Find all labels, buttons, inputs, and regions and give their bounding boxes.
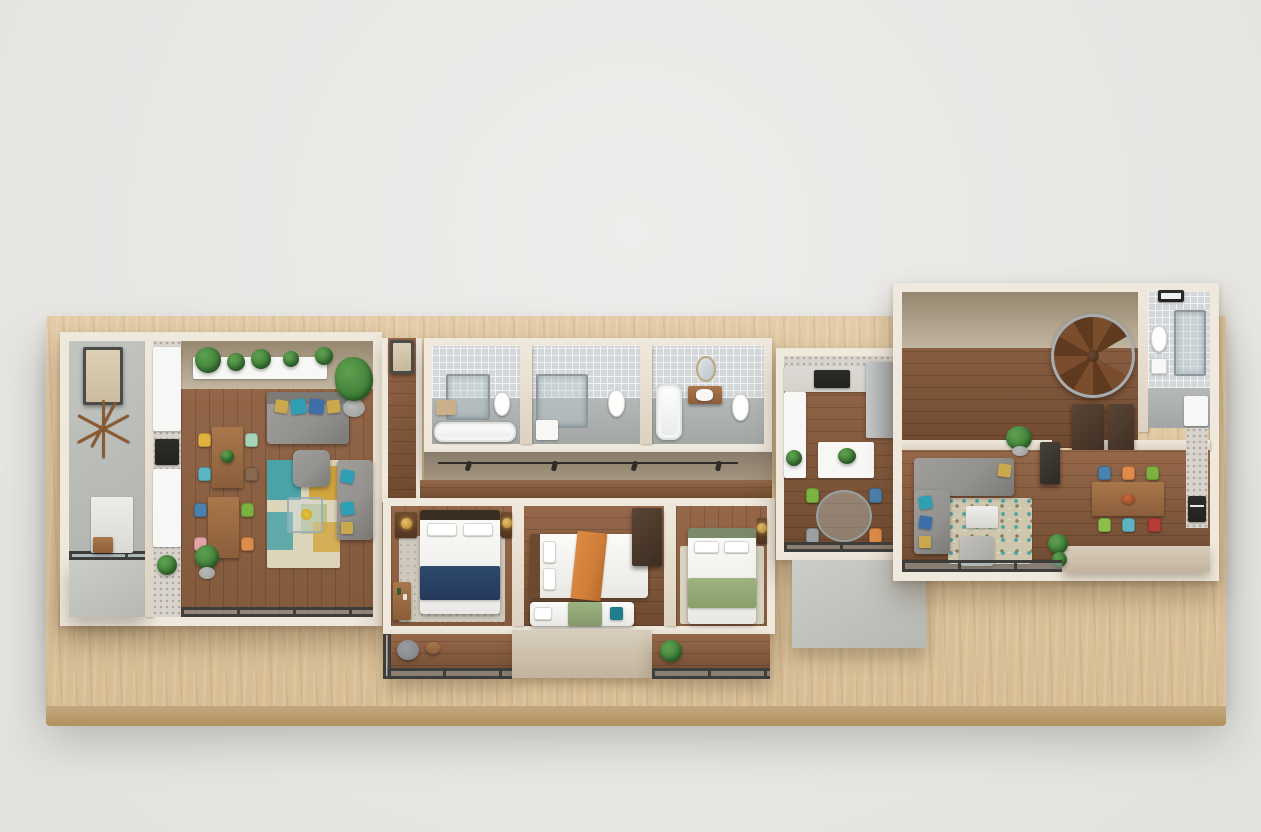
dining-chair-blue [869, 488, 882, 503]
terrace-blank-wall [512, 630, 652, 678]
kitchen-counter-upper [153, 347, 181, 431]
balcony-plant [660, 640, 682, 662]
orange-throw [571, 531, 608, 602]
dining-chair-orange [869, 528, 882, 543]
pillow-gold [919, 536, 931, 548]
pillow [463, 523, 493, 536]
pillow-blue [308, 398, 324, 414]
pillow [694, 541, 719, 553]
sofa [267, 392, 349, 444]
oven-handle [1190, 505, 1204, 507]
bedroom-wing [383, 498, 775, 634]
balcony-side-table [426, 642, 440, 654]
teal-cushion [610, 607, 623, 620]
refrigerator [866, 362, 896, 438]
pillow [543, 568, 556, 590]
armchair [293, 450, 330, 487]
corridor [382, 338, 422, 502]
dining-chair-green [1146, 466, 1159, 480]
staircase-pole [1087, 350, 1099, 362]
dining-front-wall [1062, 546, 1210, 572]
yellow-flowers [301, 509, 312, 520]
headboard [530, 534, 540, 598]
shower-tray [536, 420, 558, 440]
dining-chair-orange [241, 537, 254, 551]
navy-throw [420, 566, 500, 600]
pillow-teal [340, 501, 355, 516]
shelf-plant [227, 353, 245, 371]
bathtub [656, 384, 682, 440]
pillow [427, 523, 457, 536]
dining-chair-green [241, 503, 254, 517]
front-door-panel [86, 350, 120, 402]
dining-chair-gray [806, 528, 819, 543]
right-wing [893, 283, 1219, 581]
wardrobe [632, 508, 662, 566]
fiddle-leaf-plant [335, 357, 373, 401]
living-glass-wall [181, 607, 373, 617]
hallway-floor [420, 480, 772, 500]
table-plant [221, 450, 234, 463]
brass-lamp [502, 518, 512, 528]
pillow [534, 607, 552, 620]
shelf-plant [315, 347, 333, 365]
bed-single-sage [530, 602, 634, 626]
washbasin [1151, 358, 1167, 374]
dining-chair-blue [194, 503, 207, 517]
dining-chair-teal [198, 467, 211, 481]
pillow [543, 541, 556, 563]
dining-chair-walnut [245, 467, 258, 481]
oven [1188, 496, 1206, 522]
sage-throw [688, 578, 756, 608]
left-wing [60, 332, 382, 626]
headboard [688, 528, 756, 538]
kitchenette-tall-cabinet [1184, 396, 1208, 426]
fiddle-plant-pot [343, 399, 365, 417]
writing-desk [393, 582, 411, 620]
pillow [724, 541, 749, 553]
glass-railing [387, 668, 512, 679]
wood-base-front-edge [46, 706, 1226, 726]
shelf-plant [283, 351, 299, 367]
washbasin [696, 389, 713, 401]
pillow-gold [274, 399, 289, 414]
pillow-gold [997, 463, 1012, 478]
dining-chair-lime [1098, 518, 1111, 532]
dining-chair-mint [245, 433, 258, 447]
round-glass-table [816, 490, 872, 542]
brass-lamp [401, 518, 412, 529]
coat-hook [715, 461, 722, 472]
cooktop [155, 439, 179, 465]
vanity [688, 386, 722, 404]
dining-chair-yellow [198, 433, 211, 447]
bathroom-divider-wall [520, 346, 532, 444]
dining-chair-blue [1098, 466, 1111, 480]
coat-rack [75, 397, 133, 461]
toilet [1151, 326, 1167, 352]
pillow-teal [290, 398, 307, 415]
left-balcony-floor [69, 560, 145, 617]
shelf-plant [251, 349, 271, 369]
shower [1174, 310, 1206, 376]
toilet [732, 394, 749, 421]
bed-navy [420, 510, 500, 614]
media-cabinet [1040, 442, 1060, 484]
balcony-stool [397, 640, 419, 660]
fruit-bowl [1122, 494, 1135, 504]
island-plant [838, 448, 856, 464]
bed-orange [530, 534, 648, 598]
pillow-gold [326, 399, 340, 413]
towel-basket [436, 400, 456, 415]
corridor-door-panel [393, 343, 411, 371]
sectional-sofa-chaise [914, 490, 950, 554]
bed-sage [688, 528, 756, 624]
kitchen-plant [157, 555, 177, 575]
glass-coffee-table [287, 497, 323, 533]
cooktop [814, 370, 850, 388]
coffee-table [966, 506, 998, 528]
window-glass [1161, 293, 1181, 299]
studio-scene [0, 0, 1261, 832]
sage-throw [568, 602, 602, 626]
glass-railing [652, 668, 770, 679]
bedroom-divider-wall [512, 506, 524, 626]
bottle [403, 594, 407, 600]
floor-plant [195, 545, 219, 569]
glass-railing-side [383, 634, 391, 679]
dining-chair-teal [1122, 518, 1135, 532]
dining-chair-green [806, 488, 819, 503]
stair-bath-wall [1138, 292, 1148, 432]
kitchen-counter-lower [153, 469, 181, 547]
bottle [397, 588, 401, 595]
headboard [420, 510, 500, 520]
plant-pot [1012, 446, 1028, 456]
toilet [494, 392, 510, 416]
dining-table-a [212, 427, 243, 488]
loveseat [337, 460, 373, 540]
floor-plant-pot [199, 567, 215, 579]
hallway-coat-wall [424, 452, 772, 480]
dining-chair-red [1148, 518, 1161, 532]
bedroom-divider-wall [664, 506, 676, 626]
dining-table [1092, 482, 1164, 516]
counter-plant [786, 450, 802, 466]
bathtub [434, 422, 516, 442]
coat-rail [438, 462, 738, 464]
pillow-blue [918, 515, 933, 530]
pillow-gold [341, 522, 353, 534]
glass-railing [902, 560, 1062, 572]
toilet [608, 390, 625, 417]
entry-tray-table [93, 537, 113, 553]
corridor-door [390, 340, 414, 374]
dining-chair-orange [1122, 466, 1135, 480]
open-kitchen-wing [776, 348, 906, 560]
oval-mirror [696, 356, 716, 382]
coat-hook [551, 461, 558, 472]
pillow-teal [918, 495, 933, 510]
brass-lamp [757, 523, 767, 533]
bathroom-block [424, 338, 772, 452]
kitchen-glass-wall [784, 542, 898, 552]
window-frame [1158, 290, 1184, 302]
balcony-plant [1048, 534, 1068, 554]
entry-kitchen-wall [145, 341, 153, 617]
bathroom-divider-wall [640, 346, 652, 444]
pillow-teal [340, 469, 355, 484]
shelf-plant [195, 347, 221, 373]
